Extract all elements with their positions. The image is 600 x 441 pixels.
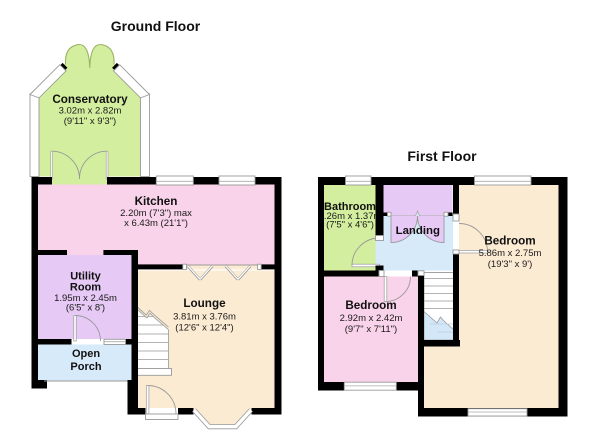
- svg-text:(9'11" x 9'3"): (9'11" x 9'3"): [64, 116, 116, 127]
- svg-text:Landing: Landing: [396, 225, 440, 237]
- svg-text:(6'5" x 8'): (6'5" x 8'): [66, 303, 105, 314]
- svg-text:First Floor: First Floor: [407, 148, 477, 164]
- svg-text:Room: Room: [70, 282, 101, 294]
- svg-text:Lounge: Lounge: [183, 297, 226, 310]
- svg-text:Ground Floor: Ground Floor: [111, 18, 201, 34]
- svg-text:Bedroom: Bedroom: [484, 235, 535, 248]
- svg-text:2.92m x 2.42m: 2.92m x 2.42m: [340, 313, 403, 324]
- svg-text:Open: Open: [72, 348, 100, 360]
- svg-text:(19'3" x 9'): (19'3" x 9'): [488, 259, 533, 270]
- svg-text:(7'5" x 4'6"): (7'5" x 4'6"): [326, 220, 374, 231]
- svg-text:Porch: Porch: [70, 361, 101, 373]
- svg-text:5.86m x 2.75m: 5.86m x 2.75m: [479, 248, 542, 259]
- svg-text:(9'7" x 7'11"): (9'7" x 7'11"): [345, 324, 397, 335]
- svg-text:Conservatory: Conservatory: [52, 93, 128, 106]
- svg-text:3.81m x 3.76m: 3.81m x 3.76m: [173, 312, 236, 323]
- svg-text:(12'6" x 12'4"): (12'6" x 12'4"): [175, 323, 233, 334]
- svg-text:x 6.43m (21'1"): x 6.43m (21'1"): [124, 218, 188, 229]
- svg-text:3.02m x 2.82m: 3.02m x 2.82m: [59, 106, 122, 117]
- svg-text:Bedroom: Bedroom: [345, 299, 396, 312]
- svg-text:Kitchen: Kitchen: [135, 195, 178, 208]
